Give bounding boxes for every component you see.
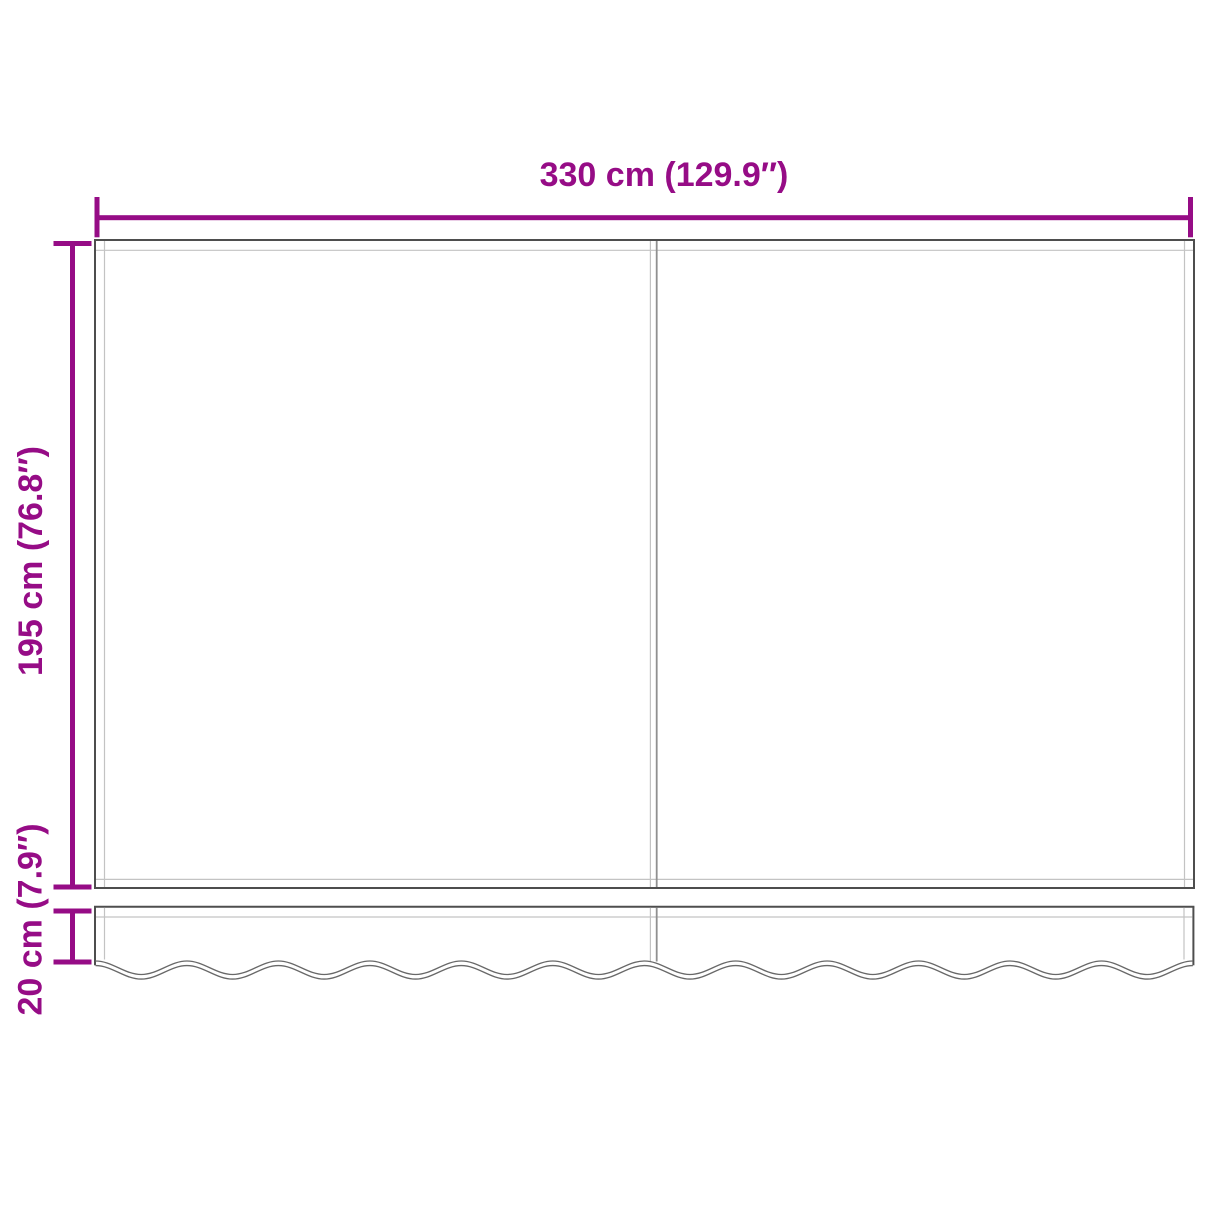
svg-text:330 cm (129.9″): 330 cm (129.9″) [540,156,789,194]
svg-text:195 cm (76.8″): 195 cm (76.8″) [12,446,50,676]
svg-text:20 cm (7.9″): 20 cm (7.9″) [11,823,49,1015]
